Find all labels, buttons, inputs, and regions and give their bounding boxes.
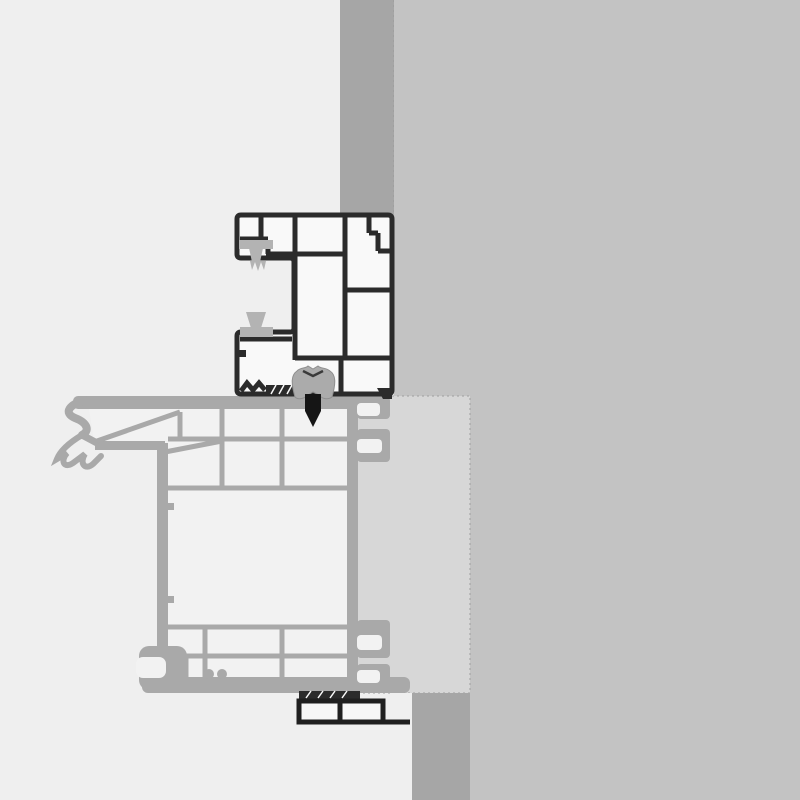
chamber-tick-lower — [163, 596, 174, 603]
fixing-tab-2-slot — [357, 439, 382, 453]
brush-seal-top-plate — [239, 240, 273, 249]
technical-section-drawing — [0, 0, 800, 800]
wall-reveal-top — [340, 0, 394, 219]
fixing-tab-1-slot — [357, 403, 380, 416]
bottom-bump-left — [204, 669, 214, 679]
bottom-hook-slot — [136, 657, 166, 678]
sash-right-wall — [347, 396, 358, 693]
frame-left-nub — [237, 350, 246, 357]
sash-top-wall — [73, 396, 390, 409]
sash-chamber-field — [163, 402, 347, 683]
chamber-tick-upper — [163, 503, 174, 510]
fixing-tab-3-slot — [357, 635, 382, 650]
wall-reveal-bottom — [412, 693, 470, 800]
outer-frame-profile — [237, 215, 392, 427]
sash-ledge — [95, 441, 165, 450]
background-patch-below-sill — [392, 693, 412, 800]
bottom-bump-right — [217, 669, 227, 679]
sash-left-wall — [157, 443, 168, 653]
fixing-tab-4-slot — [357, 670, 380, 683]
wedge-seal-plate — [240, 327, 273, 337]
